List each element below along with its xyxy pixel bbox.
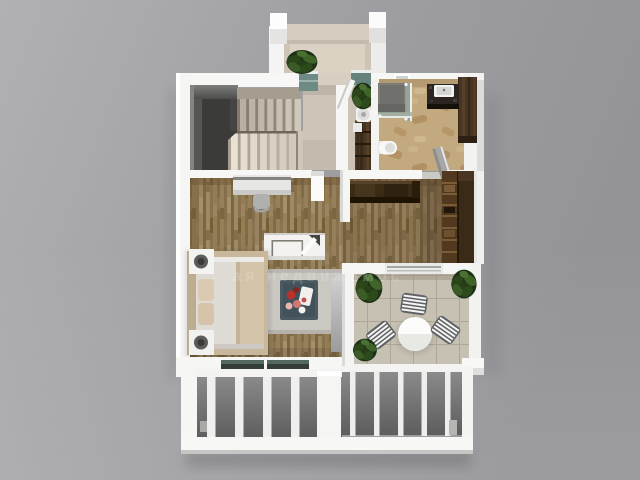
svg-text:ая недвижимос: ая недвижимос [233,268,404,285]
